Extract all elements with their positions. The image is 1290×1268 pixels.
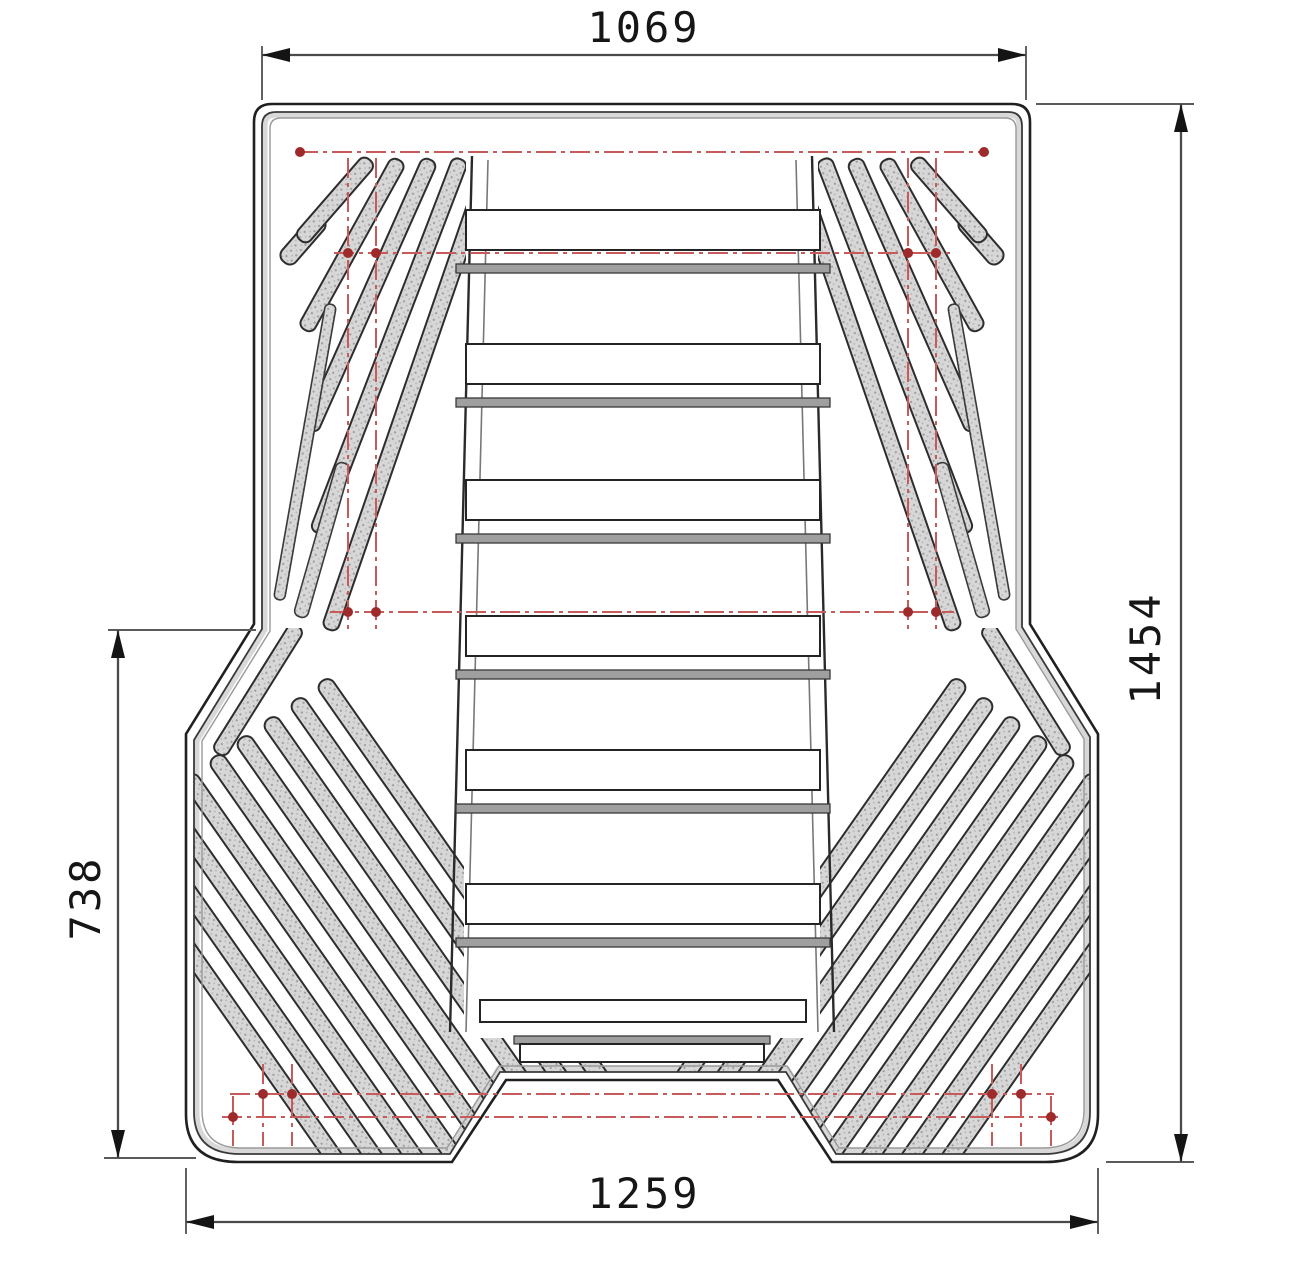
dimension-top: 1069 [262,3,1026,100]
drawing-canvas: 1069 1454 738 1259 [0,0,1290,1268]
dimension-right-value: 1454 [1121,591,1170,704]
technical-drawing-page: 1069 1454 738 1259 [0,0,1290,1268]
dimension-left-value: 738 [61,856,110,941]
dimension-bottom-value: 1259 [587,1169,700,1218]
dimension-bottom: 1259 [186,1168,1098,1234]
dimension-top-value: 1069 [587,3,700,52]
